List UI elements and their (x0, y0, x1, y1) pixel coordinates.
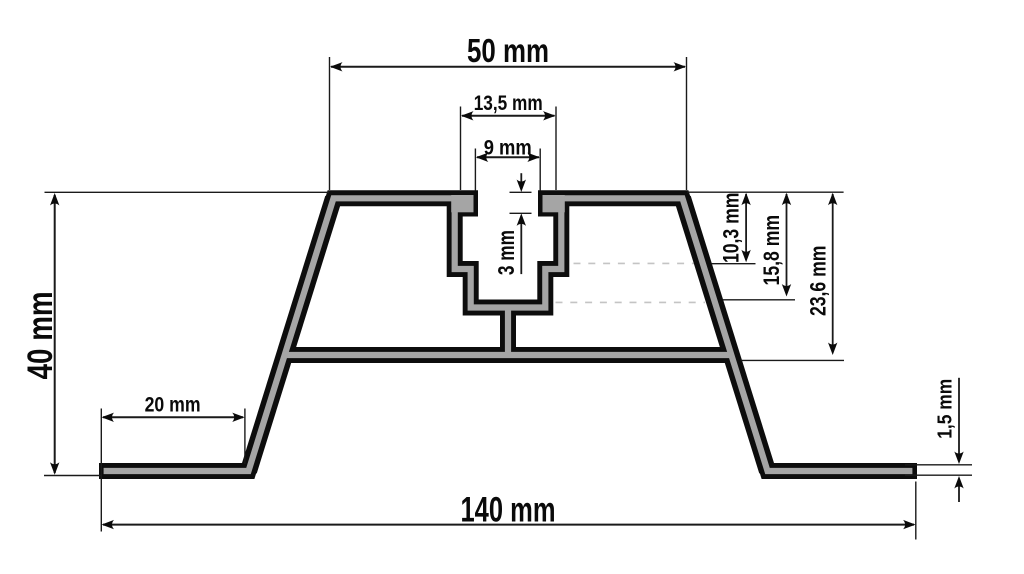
svg-text:3 mm: 3 mm (493, 230, 519, 275)
svg-text:40 mm: 40 mm (21, 291, 60, 379)
svg-text:23,6 mm: 23,6 mm (806, 246, 831, 317)
svg-text:20 mm: 20 mm (145, 393, 201, 416)
svg-text:140 mm: 140 mm (461, 490, 556, 529)
svg-text:50 mm: 50 mm (467, 32, 549, 69)
svg-text:15,8 mm: 15,8 mm (759, 215, 784, 286)
svg-text:13,5 mm: 13,5 mm (474, 91, 543, 115)
svg-text:9 mm: 9 mm (484, 135, 532, 159)
svg-text:1,5 mm: 1,5 mm (934, 379, 957, 439)
svg-text:10,3 mm: 10,3 mm (719, 193, 744, 263)
